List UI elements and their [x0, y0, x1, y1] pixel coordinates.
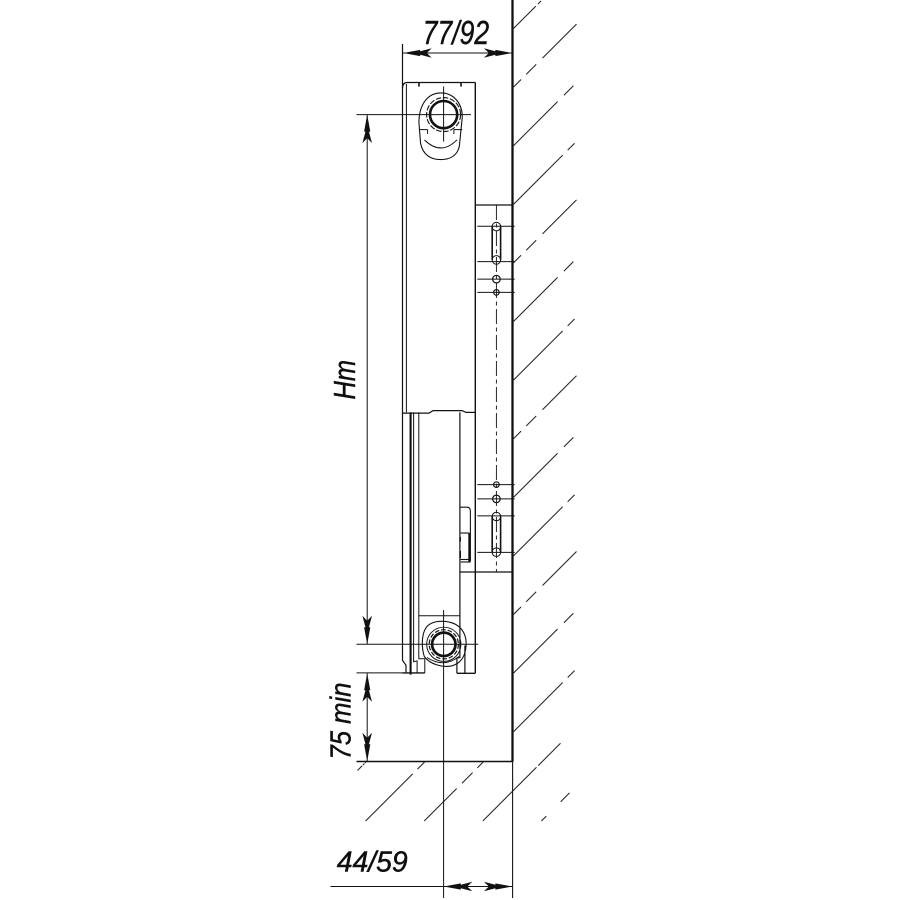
svg-text:Hm: Hm [328, 360, 362, 400]
svg-text:77/92: 77/92 [423, 15, 490, 52]
svg-text:75 min: 75 min [325, 683, 357, 760]
svg-text:44/59: 44/59 [337, 847, 408, 879]
